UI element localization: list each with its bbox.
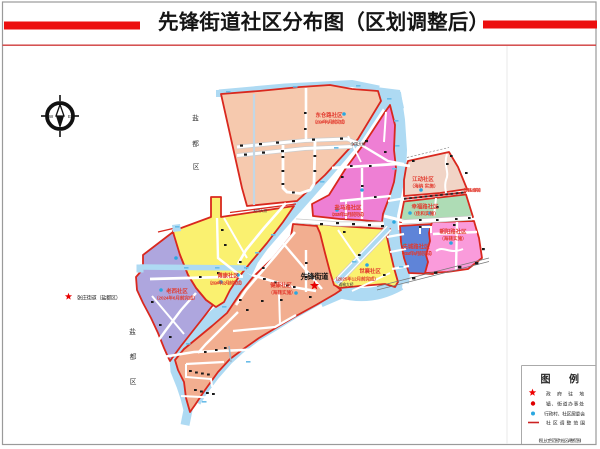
svg-text:（图上红色范围为社区调整范围）: （图上红色范围为社区调整范围） xyxy=(536,437,584,444)
svg-text:W: W xyxy=(49,114,54,119)
svg-text:区: 区 xyxy=(193,163,200,171)
svg-text:E: E xyxy=(68,114,71,119)
svg-text:全国大桥: 全国大桥 xyxy=(350,142,365,147)
svg-text:都: 都 xyxy=(192,140,199,148)
svg-text:（2024年12月前完成）: （2024年12月前完成） xyxy=(207,280,245,287)
svg-text:世襄社区: 世襄社区 xyxy=(359,267,381,275)
svg-text:（2024年6月前完成）: （2024年6月前完成） xyxy=(154,295,198,302)
svg-text:通榆大桥: 通榆大桥 xyxy=(338,282,353,287)
svg-text:先锋街道社区分布图（区划调整后）: 先锋街道社区分布图（区划调整后） xyxy=(158,10,489,34)
svg-text:（长青路以南实施）: （长青路以南实施） xyxy=(461,188,483,193)
svg-text:东仓路社区: 东仓路社区 xyxy=(316,111,344,119)
svg-text:（海辖实施）: （海辖实施） xyxy=(268,289,296,296)
svg-text:盐马路社区: 盐马路社区 xyxy=(335,204,363,212)
svg-text:都: 都 xyxy=(130,353,137,361)
svg-text:大同大桥: 大同大桥 xyxy=(253,208,268,213)
svg-text:行政村、社区居委会: 行政村、社区居委会 xyxy=(544,411,585,418)
svg-text:区: 区 xyxy=(130,378,137,386)
svg-text:江动社区: 江动社区 xyxy=(412,175,434,183)
svg-text:盐: 盐 xyxy=(129,327,136,336)
svg-text:（2024年6月前完成）: （2024年6月前完成） xyxy=(399,250,435,257)
svg-text:老西社区: 老西社区 xyxy=(166,287,188,295)
svg-text:先锋街道: 先锋街道 xyxy=(301,272,330,281)
svg-text:社 区 调 整 范 围: 社 区 调 整 范 围 xyxy=(546,420,585,427)
svg-text:张庄街道（盐都区）: 张庄街道（盐都区） xyxy=(77,294,121,302)
svg-text:（2025年12月前完成）: （2025年12月前完成） xyxy=(329,211,367,218)
svg-text:健康社区: 健康社区 xyxy=(270,281,292,289)
svg-text:（海辖实施）: （海辖实施） xyxy=(439,235,467,242)
svg-text:（海纳 实施）: （海纳 实施） xyxy=(410,183,439,190)
svg-text:（2024年6月前完成）: （2024年6月前完成） xyxy=(312,119,348,126)
svg-text:幸福路社区: 幸福路社区 xyxy=(412,203,440,211)
svg-text:先城路社区: 先城路社区 xyxy=(403,243,431,251)
svg-text:（佳和实施）: （佳和实施） xyxy=(411,210,439,217)
svg-text:（2025年12月前完成）: （2025年12月前完成） xyxy=(333,276,379,283)
svg-text:博康社区: 博康社区 xyxy=(217,272,239,280)
svg-text:图: 图 xyxy=(541,374,551,386)
svg-text:镇、街道办事处: 镇、街道办事处 xyxy=(546,401,584,408)
svg-text:盐: 盐 xyxy=(192,114,199,123)
svg-text:朝阳路社区: 朝阳路社区 xyxy=(440,228,468,236)
svg-text:例: 例 xyxy=(569,373,579,386)
